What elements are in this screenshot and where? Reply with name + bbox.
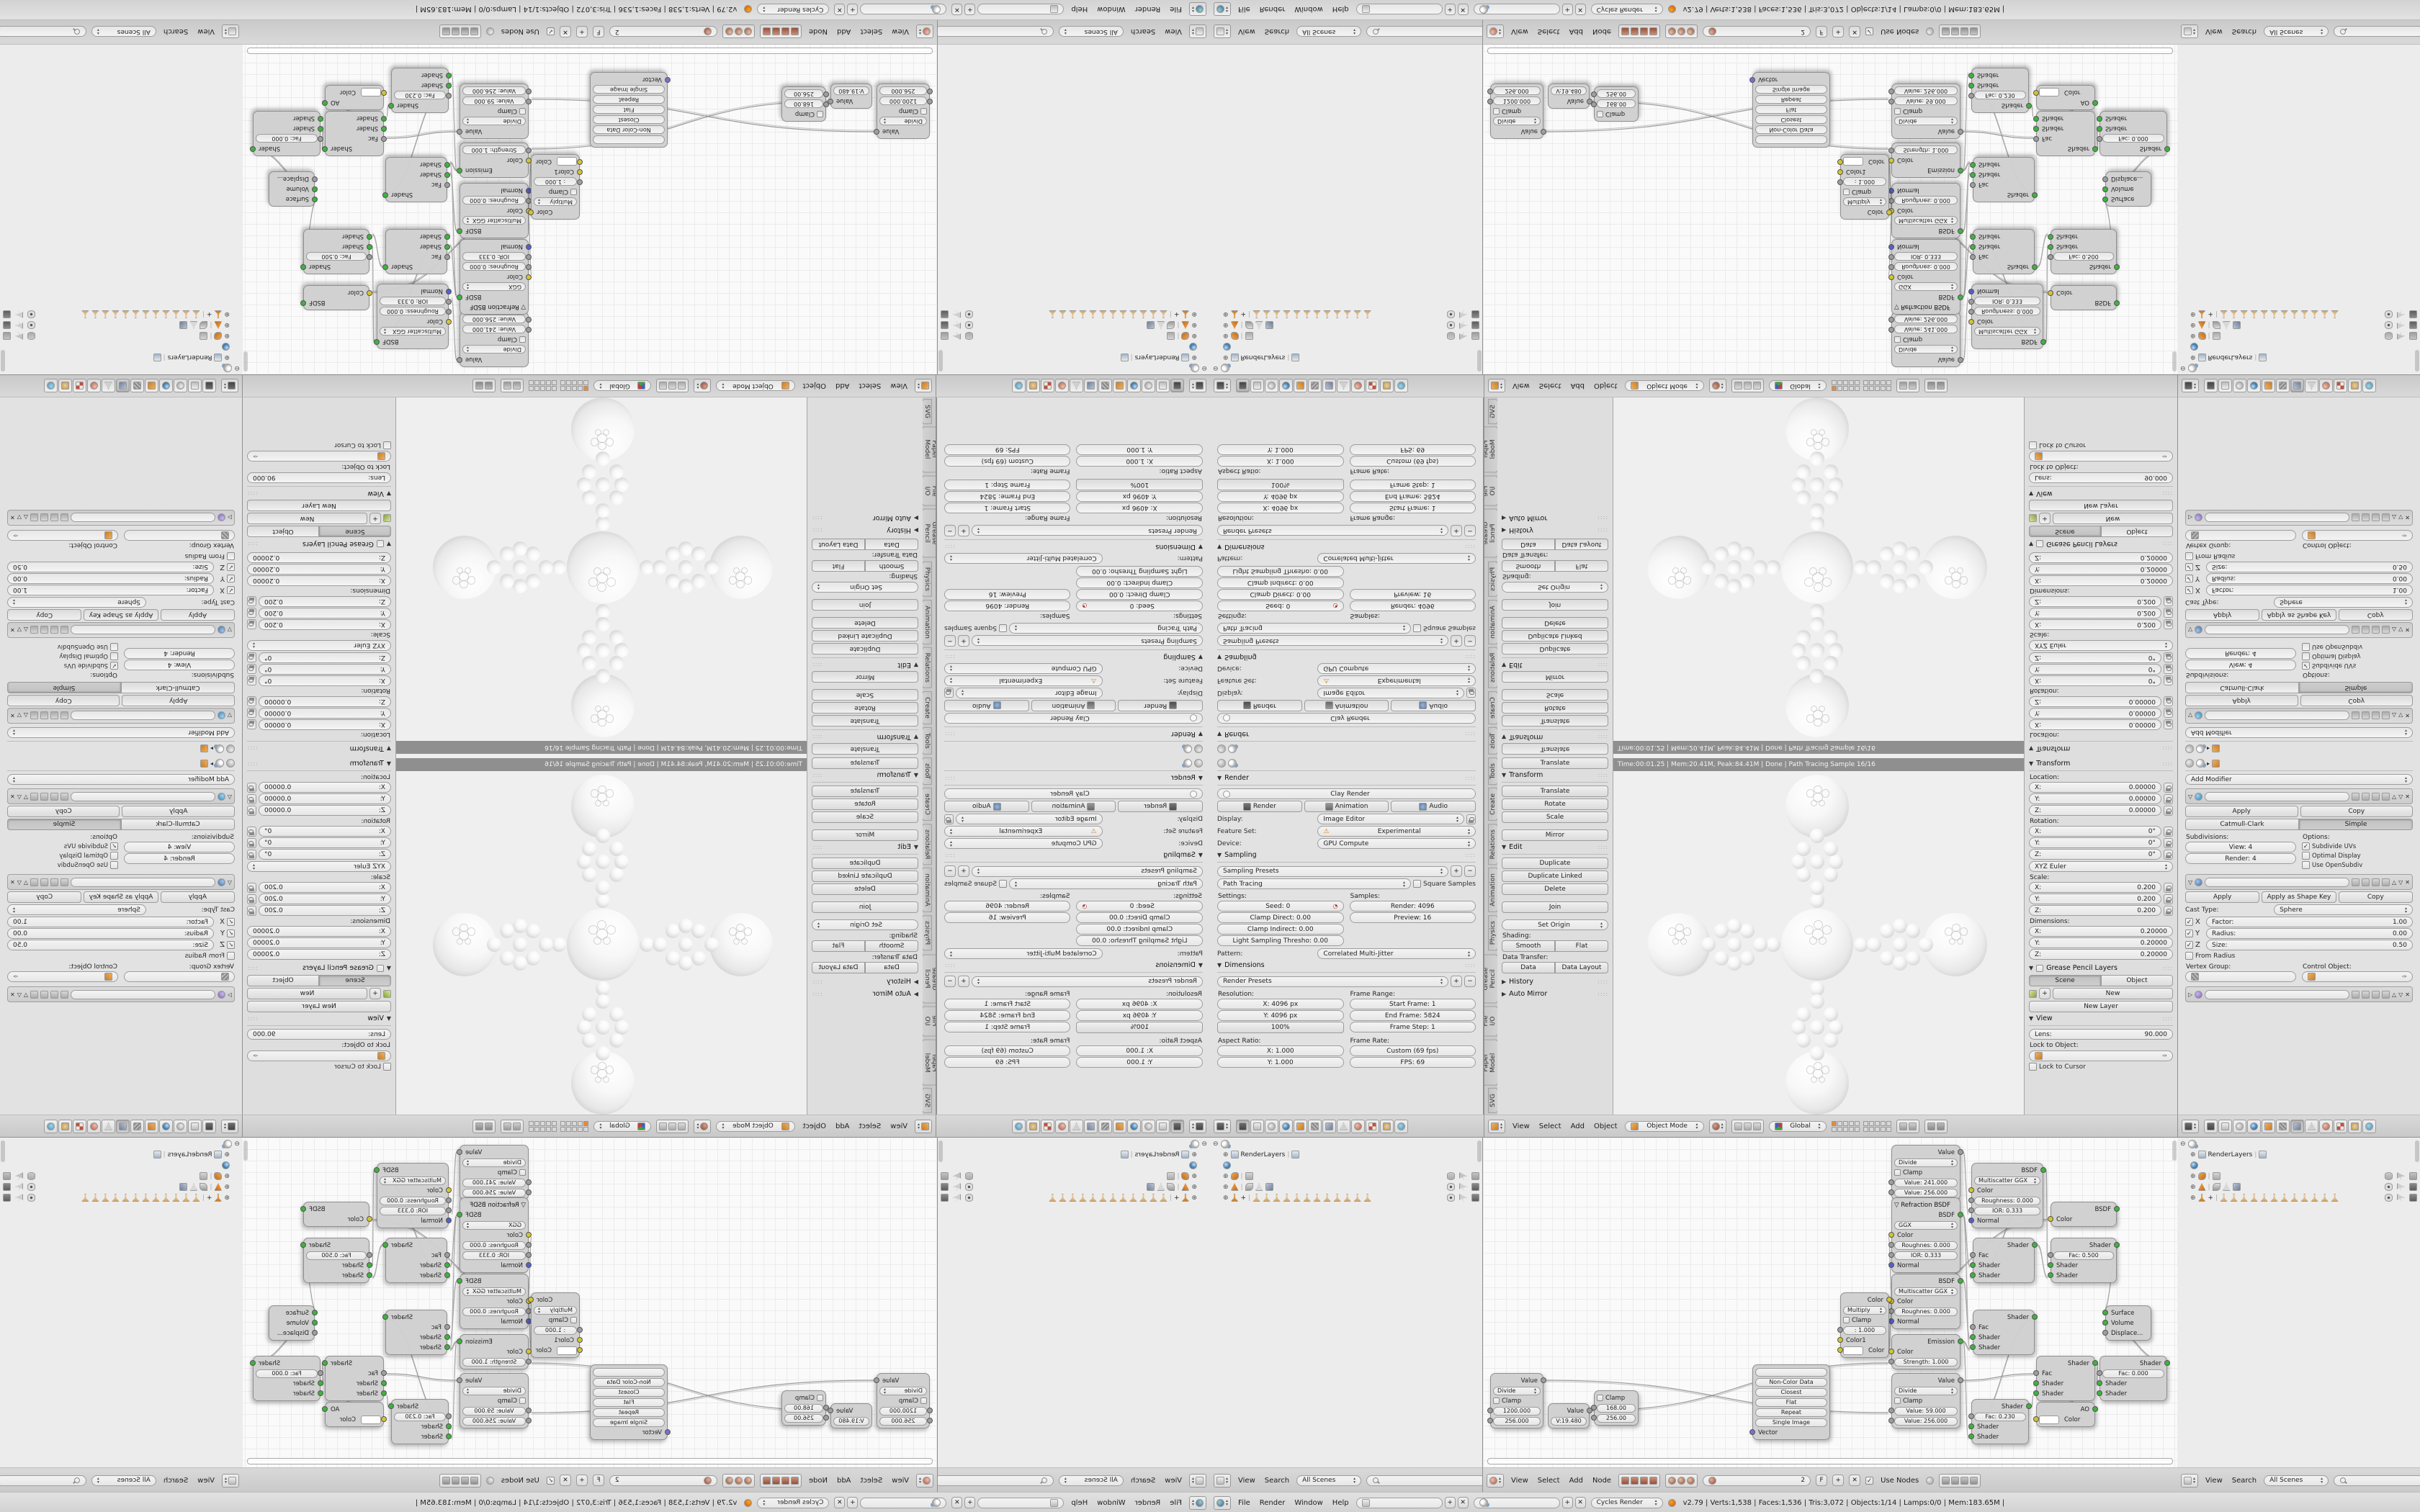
world-ball-icon[interactable]	[1677, 28, 1685, 36]
tab-texture-icon[interactable]	[73, 1120, 86, 1133]
node-n16[interactable]: ShaderFac: 0.230ShaderShader	[391, 68, 449, 113]
node-select[interactable]: Multiply▴▾	[534, 1306, 577, 1315]
shading-select[interactable]: ▴▾	[1709, 1120, 1726, 1133]
socket-in-shader[interactable]	[2097, 1390, 2102, 1396]
field-casttype[interactable]: Sphere▴▾	[2274, 904, 2413, 915]
column-field[interactable]: Frame Step: 1	[1350, 1022, 1476, 1032]
node-n14[interactable]: ShaderFac: 0.000ShaderShader	[253, 1356, 321, 1401]
preset-plus-button[interactable]: +	[958, 525, 969, 536]
moveup-icon[interactable]: △	[2392, 713, 2396, 719]
menu-node[interactable]: Node	[807, 1477, 830, 1485]
panel-checkbox[interactable]	[377, 541, 384, 548]
toolshelf-tab-create[interactable]: Create	[1488, 788, 1498, 821]
number-field[interactable]: X:0.200	[259, 619, 391, 630]
gp-plus-button[interactable]: +	[2039, 513, 2051, 524]
segment-scene[interactable]: Scene	[2029, 526, 2101, 537]
number-field[interactable]: Y:0.20000	[247, 937, 391, 948]
group-insert-icon[interactable]	[452, 1477, 460, 1485]
layer-dot[interactable]	[534, 1121, 539, 1126]
toolshelf-tab-paper-model[interactable]: Paper Model	[1484, 427, 1498, 473]
socket-in-value[interactable]	[446, 309, 452, 315]
node-vscrollbar[interactable]	[2172, 351, 2177, 372]
manip-translate-icon[interactable]	[678, 1122, 686, 1130]
node-value-field[interactable]	[1755, 136, 1827, 145]
socket-in-color1[interactable]	[577, 169, 583, 175]
color-swatch[interactable]	[1843, 158, 1863, 166]
layer-dot[interactable]	[583, 1127, 588, 1132]
layer-dot[interactable]	[1832, 1121, 1837, 1126]
socket-in-shader[interactable]	[1970, 1344, 1976, 1350]
sampling-method-select[interactable]: Path Tracing▴▾	[1009, 623, 1203, 634]
node-checkbox[interactable]	[570, 1317, 577, 1323]
socket-in-surface[interactable]	[2102, 197, 2108, 202]
node-n14[interactable]: ShaderFac: 0.000ShaderShader	[253, 111, 321, 156]
npanel-panel-header[interactable]: ▼View::::	[247, 1014, 391, 1022]
node-checkbox[interactable]	[1894, 1398, 1901, 1404]
delete-button[interactable]: ✕	[834, 4, 845, 15]
toolshelf-panel-header[interactable]: ▶Auto Mirror::::	[1502, 990, 1608, 998]
node-n12[interactable]: SurfaceVolumeDisplace...	[2105, 171, 2151, 207]
lock-icon[interactable]	[944, 814, 954, 824]
lock-icon[interactable]	[247, 783, 256, 793]
column-field[interactable]: Render: 4096	[1350, 600, 1476, 611]
outliner-row[interactable]: ⊕|	[938, 1171, 1210, 1182]
toolshelf-tab-animation[interactable]: Animation	[922, 868, 932, 912]
manipulator-buttons[interactable]	[656, 1120, 689, 1133]
menu-render[interactable]: Render	[1258, 6, 1288, 14]
checkbox-axis-z[interactable]: ✓	[227, 563, 235, 571]
seed-anim-icon[interactable]: ◔	[1333, 603, 1338, 609]
column-field[interactable]: Clamp Indirect: 0.00	[1217, 924, 1344, 935]
socket-in-fac[interactable]	[1970, 254, 1976, 260]
socket-out-value[interactable]	[1958, 129, 1963, 135]
movedown-icon[interactable]: ▽	[2398, 991, 2403, 998]
preset-minus-button[interactable]: −	[1464, 635, 1476, 647]
menu-select[interactable]: Select	[858, 1477, 884, 1485]
preset-minus-button[interactable]: −	[1464, 525, 1476, 536]
lock-icon[interactable]	[2164, 720, 2173, 730]
render-camera-icon[interactable]	[485, 1122, 493, 1130]
tab-scene-icon[interactable]	[174, 379, 187, 393]
socket-in-shader[interactable]	[1970, 234, 1976, 240]
editor-type-button[interactable]: ▴▾	[1189, 1120, 1206, 1133]
expand-icon[interactable]: ⊕	[2190, 1194, 2196, 1202]
node-value-field[interactable]: Value: 256.000	[462, 1417, 526, 1426]
toggle-clay-render[interactable]: Clay Render	[944, 788, 1203, 799]
node-value-field[interactable]: Value: 256.000	[1894, 1417, 1958, 1426]
socket-out-bsdf[interactable]	[457, 1278, 462, 1284]
tab-texture-icon[interactable]	[73, 379, 86, 393]
npanel-panel-header[interactable]: ▼Grease Pencil Layers::::	[2029, 540, 2173, 548]
node-select[interactable]: GGX▴▾	[462, 283, 526, 292]
layer-dot[interactable]	[1875, 1127, 1880, 1132]
npanel-panel-header[interactable]: ▼Transform::::	[247, 744, 391, 752]
magnet-icon[interactable]	[1899, 1122, 1907, 1130]
node-value-field[interactable]: Fac: 0.500	[306, 253, 367, 261]
column-field[interactable]: 100%	[1077, 1022, 1204, 1033]
socket-out-emission[interactable]	[457, 1338, 462, 1344]
socket-out-shader[interactable]	[388, 103, 394, 109]
movedown-icon[interactable]: ▽	[17, 713, 22, 719]
socket-in-fac[interactable]	[381, 1370, 387, 1376]
column-field[interactable]: FPS: 69	[944, 1057, 1071, 1068]
tab-layers-icon[interactable]	[1156, 379, 1170, 393]
number-field[interactable]: Z:0.200	[2029, 905, 2161, 916]
socket-out-shader[interactable]	[300, 264, 306, 270]
outliner-row[interactable]: ⊕+|	[0, 1192, 243, 1203]
number-field[interactable]: X:0.200	[2029, 882, 2161, 893]
socket-in-value[interactable]	[1968, 93, 1974, 99]
node-value-field[interactable]: : 1.000	[1843, 178, 1886, 186]
node-select[interactable]: Multiscatter GGX▴▾	[380, 1176, 446, 1185]
collapse-icon[interactable]: ⊖	[1201, 1140, 1207, 1148]
render-panel-header[interactable]: ▼Render::::	[944, 730, 1203, 738]
toolshelf-tab-svg[interactable]: SVG	[922, 1088, 932, 1113]
menu-select[interactable]: Select	[856, 382, 883, 390]
cast-size[interactable]: Size:0.50	[2206, 562, 2413, 572]
manip-scale-icon[interactable]	[659, 1122, 667, 1130]
field-device[interactable]: GPU Compute▴▾	[944, 838, 1103, 849]
lock-icon[interactable]	[2164, 697, 2173, 707]
menu-add[interactable]: Add	[1567, 1477, 1585, 1485]
preset-minus-button[interactable]: −	[944, 635, 956, 647]
outliner-row[interactable]: ⊕RenderLayers|	[1210, 352, 1482, 363]
segment-data-layout[interactable]: Data Layout	[1555, 539, 1608, 550]
add-modifier-select[interactable]: Add Modifier▴▾	[2185, 727, 2413, 738]
scene-name-field[interactable]	[860, 1498, 946, 1508]
render-camera-icon[interactable]	[485, 382, 493, 390]
toolshelf-tab-grease-pencil[interactable]: Grease Pencil	[1484, 954, 1498, 1003]
tab-object-icon[interactable]	[1294, 379, 1307, 393]
tab-particles-icon[interactable]	[2348, 1120, 2362, 1133]
tab-world-icon[interactable]	[2247, 1120, 2261, 1133]
tab-links-icon[interactable]	[2276, 379, 2290, 393]
expand-icon[interactable]: ⊕	[1223, 1184, 1229, 1191]
unlink-button[interactable]: ✕	[1849, 1475, 1860, 1486]
layer-dot[interactable]	[1855, 381, 1860, 386]
socket-in-color[interactable]	[1888, 274, 1894, 280]
segment-smooth[interactable]: Smooth	[865, 560, 918, 572]
socket-in-color[interactable]	[381, 1416, 387, 1422]
socket-in-value[interactable]	[1591, 102, 1597, 107]
cast-factor[interactable]: Factor:1.00	[2206, 585, 2413, 595]
delete-modifier-icon[interactable]: ✕	[2405, 793, 2410, 800]
shader-world-icon[interactable]	[1631, 28, 1639, 36]
socket-out-bsdf[interactable]	[1958, 1212, 1963, 1218]
socket-in-value[interactable]	[1888, 89, 1894, 94]
modedit-icon[interactable]	[2372, 712, 2380, 720]
button-join[interactable]: Join	[812, 901, 918, 913]
node-value-field[interactable]: Value: 241.000	[462, 1179, 526, 1187]
tab-physics-icon[interactable]	[1394, 379, 1408, 393]
menu-view[interactable]: View	[1162, 28, 1184, 36]
lock-icon[interactable]	[2164, 597, 2173, 607]
render-engine-select[interactable]: Cycles Render▴▾	[757, 1498, 829, 1508]
socket-out-bsdf[interactable]	[2040, 339, 2046, 345]
number-field[interactable]: Lens:90.000	[247, 1029, 391, 1040]
toolshelf-tab-svg[interactable]: SVG	[922, 399, 932, 424]
seed-anim-icon[interactable]: ◔	[1083, 603, 1088, 609]
socket-in-shader[interactable]	[1968, 1423, 1974, 1429]
color-swatch[interactable]	[557, 158, 577, 166]
collapse-triangle-closed[interactable]: ▷	[2188, 991, 2192, 998]
node-n6[interactable]: EmissionColorStrength: 1.000	[1891, 1334, 1960, 1369]
node-value-field[interactable]: Value: 59.000	[1894, 97, 1958, 106]
node-value-field[interactable]: Fac: 0.500	[2053, 253, 2114, 261]
expand-icon[interactable]: ⊕	[2190, 311, 2196, 318]
node-value-field[interactable]: Fac: 0.230	[394, 1413, 446, 1421]
outliner-row[interactable]: ⊕|	[2177, 330, 2420, 341]
socket-in-fac[interactable]	[2033, 136, 2039, 142]
group-make-icon[interactable]	[1970, 28, 1978, 36]
node-n17[interactable]: ValueDivide▴▾Clamp1200.000256.000	[1490, 84, 1543, 139]
socket-in-vector[interactable]	[1749, 1429, 1755, 1435]
menu-object[interactable]: Object	[800, 1122, 828, 1130]
column-field[interactable]: Start Frame: 1	[944, 503, 1071, 513]
node-n19[interactable]: Clamp168.00256.00	[781, 1390, 826, 1426]
button-rotate[interactable]: Rotate	[812, 798, 918, 810]
tab-object-icon[interactable]	[1113, 379, 1126, 393]
audio-button[interactable]: Audio	[944, 801, 1029, 812]
socket-out-shader[interactable]	[2026, 1403, 2032, 1409]
socket-in-value[interactable]	[1968, 1413, 1974, 1419]
menu-add[interactable]: Add	[833, 382, 851, 390]
node-value-field[interactable]: Value: 256.000	[1894, 315, 1958, 324]
socket-in-value[interactable]	[1591, 1415, 1597, 1421]
node-n14[interactable]: ShaderFac: 0.000ShaderShader	[2099, 1356, 2167, 1401]
toolshelf-panel-header[interactable]: ▶History::::	[1502, 526, 1608, 534]
node-value-field[interactable]: Value: 241.000	[462, 325, 526, 334]
socket-in-shader[interactable]	[381, 126, 387, 132]
column-field[interactable]	[124, 971, 235, 982]
socket-in-shader[interactable]	[444, 162, 450, 168]
number-field[interactable]: Z:0°	[2029, 652, 2161, 663]
toolshelf-tab-animation[interactable]: Animation	[1488, 600, 1498, 644]
number-field[interactable]: Lens:90.000	[2029, 1029, 2173, 1040]
toolshelf-tab-file-i-o[interactable]: File I/O	[1484, 476, 1498, 506]
socket-in-color[interactable]	[446, 319, 452, 325]
delete-button[interactable]: ✕	[1575, 4, 1586, 15]
shader-object-icon[interactable]	[791, 1477, 799, 1485]
collapse-triangle-open[interactable]: ▽	[2188, 713, 2192, 719]
layer-dot[interactable]	[1837, 381, 1842, 386]
node-value-field[interactable]: 256.00	[1597, 1414, 1636, 1423]
layer-dot[interactable]	[1832, 387, 1837, 392]
display-mode-select[interactable]: All Scenes▴▾	[1059, 1475, 1124, 1486]
column-field[interactable]: X: 1.000	[1217, 456, 1344, 467]
column-field[interactable]: 100%	[1077, 479, 1204, 490]
expand-icon[interactable]: ⊕	[2190, 322, 2196, 329]
delete-button[interactable]: ✕	[1575, 1497, 1586, 1508]
socket-in-shader[interactable]	[1970, 1272, 1976, 1278]
tab-layers-icon[interactable]	[188, 1120, 202, 1133]
lock-icon[interactable]	[247, 653, 256, 663]
socket-in-volume[interactable]	[312, 1320, 318, 1326]
editor-type-button[interactable]: ▴▾	[1214, 379, 1231, 393]
number-field[interactable]: Y:0.00000	[259, 793, 391, 804]
add-modifier-select[interactable]: Add Modifier▴▾	[7, 727, 235, 738]
field-device[interactable]: GPU Compute▴▾	[1317, 838, 1476, 849]
node-value-field[interactable]: : 1.000	[1843, 1326, 1886, 1335]
modcam-icon[interactable]	[60, 626, 68, 634]
field-casttype[interactable]: Sphere▴▾	[7, 904, 146, 915]
socket-out-shader[interactable]	[2114, 1242, 2120, 1248]
render-engine-select[interactable]: Cycles Render▴▾	[757, 4, 829, 15]
node-n7[interactable]: ValueDivide▴▾ClampValue: 59.000Value: 25…	[460, 84, 529, 139]
node-select[interactable]: Divide▴▾	[462, 117, 526, 126]
outliner-row[interactable]: ⊕RenderLayers|	[2177, 352, 2420, 363]
button-duplicate[interactable]: Duplicate	[1502, 858, 1608, 869]
node-n8[interactable]: ShaderFacShaderShader	[1973, 229, 2035, 274]
button-join[interactable]: Join	[812, 599, 918, 611]
node-n18[interactable]: ValueV:19.480	[1548, 1403, 1590, 1428]
node-n11[interactable]: BSDFColor	[303, 1202, 369, 1227]
apply-as-shape-key-button[interactable]: Apply as Shape Key	[84, 891, 158, 903]
node-value-field[interactable]: Value: 256.000	[462, 1189, 526, 1197]
render-panel-header[interactable]: ▼Sampling::::	[1217, 653, 1476, 661]
node-hscrollbar[interactable]	[247, 48, 933, 54]
button-translate[interactable]: Translate	[1502, 757, 1608, 769]
layer-dot[interactable]	[540, 381, 545, 386]
column-field[interactable]: Custom (69 fps)	[1350, 456, 1476, 467]
field-featureset[interactable]: ⚠Experimental▴▾	[1317, 675, 1476, 686]
menu-file[interactable]: File	[1168, 1499, 1184, 1507]
gp-plus-button[interactable]: +	[2039, 988, 2051, 999]
outliner-row[interactable]: ⊕RenderLayers|	[938, 352, 1210, 363]
cast-size[interactable]: Size:0.50	[7, 940, 214, 950]
pencil-icon[interactable]	[383, 515, 391, 523]
socket-in-color[interactable]	[1968, 319, 1974, 325]
button-delete[interactable]: Delete	[812, 883, 918, 895]
add-modifier-select[interactable]: Add Modifier▴▾	[2185, 774, 2413, 785]
magnet-icon[interactable]	[470, 1477, 478, 1485]
node-select[interactable]: Multiply▴▾	[1843, 198, 1886, 207]
shader-world-icon[interactable]	[781, 1477, 789, 1485]
modcam-icon[interactable]	[2352, 878, 2359, 886]
gp-new-button[interactable]: New	[247, 988, 367, 999]
number-field[interactable]: Y:0.200	[2029, 608, 2161, 618]
audio-button[interactable]: Audio	[944, 700, 1029, 711]
node-value-field[interactable]: 168.00	[1597, 1404, 1636, 1413]
socket-in-value[interactable]	[823, 102, 829, 107]
toolshelf-tab-paper-model[interactable]: Paper Model	[922, 1040, 936, 1086]
socket-in-color[interactable]	[1888, 1349, 1894, 1354]
material-ball-icon[interactable]	[1668, 28, 1676, 36]
preset-plus-button[interactable]: +	[1451, 865, 1462, 877]
render-engine-select[interactable]: Cycles Render▴▾	[1591, 4, 1663, 15]
layer-dot[interactable]	[540, 1121, 545, 1126]
expand-icon[interactable]: ⊕	[224, 1151, 230, 1158]
node-value-field[interactable]: IOR: 0.333	[1974, 297, 2040, 306]
toolshelf-tab-physics[interactable]: Physics	[922, 915, 932, 950]
render-panel-header[interactable]: ▼Dimensions::::	[1217, 543, 1476, 551]
group-make-icon[interactable]	[442, 28, 450, 36]
toggle-clay-render[interactable]: Clay Render	[1217, 788, 1476, 799]
snap-mode-icon[interactable]	[461, 28, 469, 36]
field-pattern[interactable]: Correlated Multi-Jitter▴▾	[944, 948, 1103, 959]
tab-material-icon[interactable]	[1055, 1120, 1069, 1133]
editor-type-button[interactable]: ▴▾	[1214, 25, 1231, 39]
layer-dot[interactable]	[1886, 1121, 1891, 1126]
button-rotate[interactable]: Rotate	[812, 702, 918, 714]
node-n3[interactable]: BSDFMultiscatter GGX▴▾ColorRoughness: 0.…	[377, 1163, 449, 1228]
menu-add[interactable]: Add	[833, 1122, 851, 1130]
node-select[interactable]: Multiply▴▾	[1843, 1306, 1886, 1315]
layer-dot[interactable]	[1881, 1121, 1886, 1126]
layer-dot[interactable]	[583, 1121, 588, 1126]
socket-in-value[interactable]	[446, 299, 452, 305]
lock-icon[interactable]	[247, 838, 256, 848]
button-mirror[interactable]: Mirror	[812, 671, 918, 683]
layer-dot[interactable]	[552, 1127, 557, 1132]
outliner-row[interactable]: ⊕|	[0, 1182, 243, 1192]
button-scale[interactable]: Scale	[812, 689, 918, 701]
modcam-icon[interactable]	[2352, 712, 2359, 720]
segment-simple[interactable]: Simple	[7, 682, 121, 693]
socket-in-shader[interactable]	[2097, 116, 2102, 122]
preset-minus-button[interactable]: −	[1464, 865, 1476, 877]
tab-world-icon[interactable]	[159, 1120, 173, 1133]
outliner-row[interactable]: ⊕|	[1210, 1171, 1482, 1182]
number-field[interactable]: Y:0.200	[2029, 894, 2161, 904]
node-n7[interactable]: ValueDivide▴▾ClampValue: 59.000Value: 25…	[460, 1373, 529, 1428]
tab-physics-icon[interactable]	[2362, 1120, 2376, 1133]
node-value-field[interactable]: Value: 59.000	[1894, 1407, 1958, 1416]
menu-render[interactable]: Render	[1133, 6, 1163, 14]
node-value-field[interactable]: IOR: 0.333	[1974, 1207, 2040, 1215]
socket-out-ao[interactable]	[2092, 100, 2098, 106]
expand-icon[interactable]: ⊕	[1191, 1173, 1197, 1180]
node-n17[interactable]: ValueDivide▴▾Clamp1200.000256.000	[877, 84, 930, 139]
node-value-field[interactable]: Roughness: 0.000	[380, 1197, 446, 1205]
modedit-icon[interactable]	[2372, 878, 2380, 886]
column-field[interactable]: X: 1.000	[1077, 1045, 1204, 1056]
socket-in-value[interactable]	[927, 1408, 933, 1413]
material-name-field[interactable]: 2	[609, 27, 717, 37]
layer-dot[interactable]	[566, 381, 571, 386]
number-field[interactable]: X:0.20000	[2029, 575, 2173, 586]
editor-type-button[interactable]: ▴▾	[221, 1120, 238, 1133]
segment-object[interactable]: Object	[247, 975, 319, 986]
layer-dot[interactable]	[1881, 1127, 1886, 1132]
node-select[interactable]: Multiscatter GGX▴▾	[1974, 328, 2040, 336]
lock-icon[interactable]	[247, 806, 256, 816]
animation-button[interactable]: Animation	[1031, 700, 1116, 711]
toolshelf-panel-header[interactable]: ▼Transform::::	[812, 771, 918, 779]
button-duplicate-linked[interactable]: Duplicate Linked	[1502, 630, 1608, 642]
display-mode-select[interactable]: All Scenes▴▾	[1059, 27, 1124, 37]
socket-in-shader[interactable]	[1968, 83, 1974, 89]
new-material-button[interactable]: +	[576, 26, 588, 37]
menu-view[interactable]: View	[195, 28, 217, 36]
preset-select[interactable]: Render Presets▴▾	[972, 976, 1203, 987]
button-mirror[interactable]: Mirror	[1502, 671, 1608, 683]
node-value-field[interactable]: Closest	[1755, 116, 1827, 125]
node-n12[interactable]: SurfaceVolumeDisplace...	[269, 1305, 315, 1341]
number-field[interactable]: Y:0°	[2029, 837, 2161, 848]
checkbox-lock-to-cursor[interactable]	[383, 1063, 391, 1071]
segment-object[interactable]: Object	[2101, 975, 2173, 986]
checkbox-use-opensubdiv[interactable]	[110, 861, 118, 869]
modcam-icon[interactable]	[60, 514, 68, 522]
checkbox-lock-to-cursor[interactable]	[383, 441, 391, 449]
node-checkbox[interactable]	[519, 336, 526, 343]
preset-minus-button[interactable]: −	[944, 525, 956, 536]
movedown-icon[interactable]: ▽	[2398, 793, 2403, 800]
menu-view[interactable]: View	[195, 1477, 217, 1485]
shader-world-icon[interactable]	[1631, 1477, 1639, 1485]
magnet-icon[interactable]	[513, 382, 521, 390]
